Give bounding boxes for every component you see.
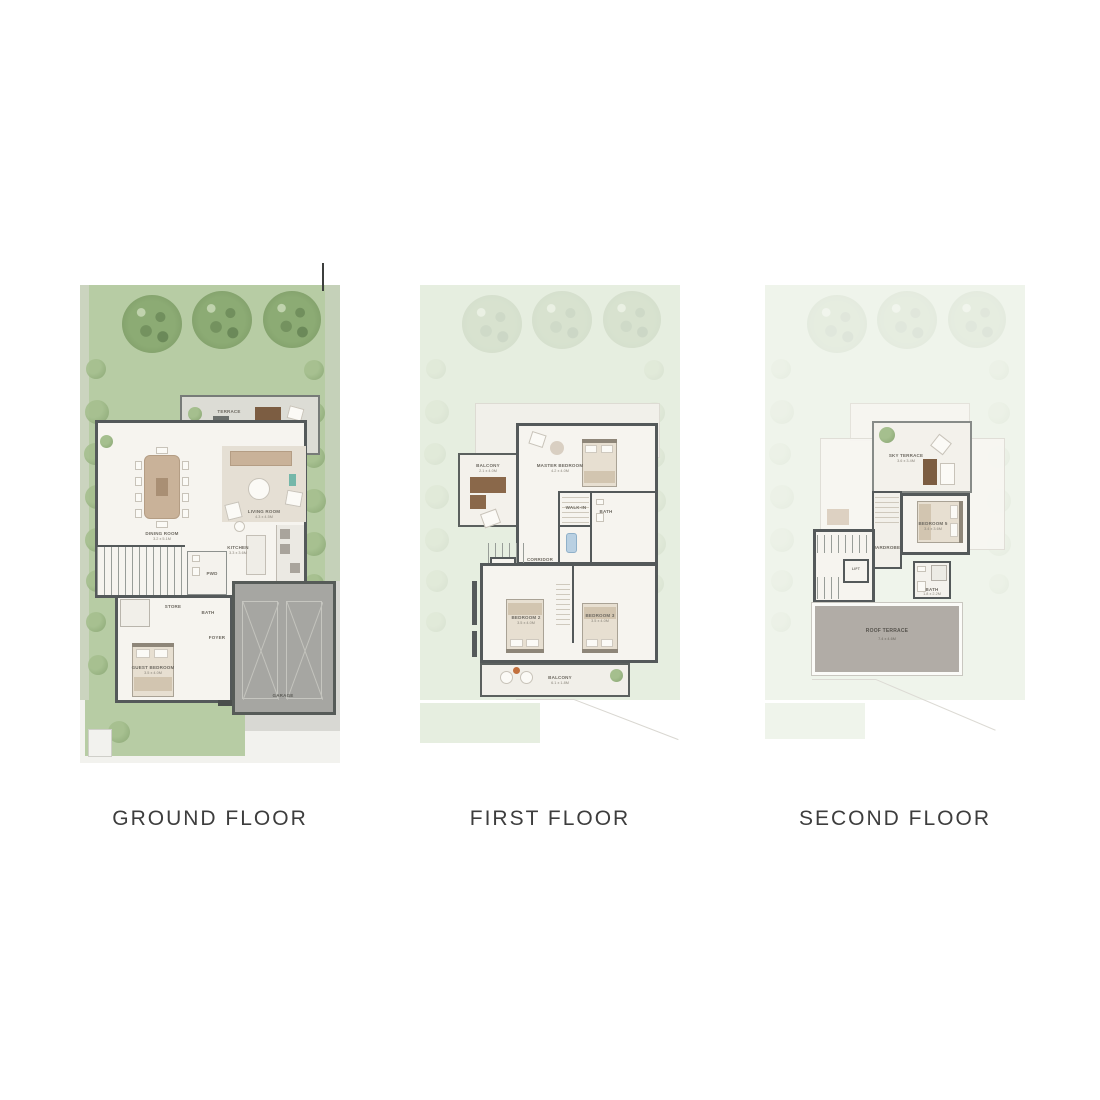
wall-stub [472,581,477,625]
armchair [285,490,303,508]
room-label: SKY TERRACE [889,453,923,458]
appliance [290,563,300,573]
pillow [136,649,150,658]
chair [182,493,189,502]
plant-icon [879,427,895,443]
desk-chair [940,463,955,485]
room-label: PWD [206,571,217,576]
first-floor-plan: BALCONY 2.1 x 4.0M MASTER BEDROOM 4.2 x … [420,263,680,763]
room-label: WARDROBE [872,545,900,550]
table-runner [156,478,168,496]
room-dims: 2.1 x 4.0M [479,469,497,473]
room-label: TERRACE [217,409,240,414]
faint-sofa [827,509,849,525]
room-dims: 3.5 x 4.0M [591,619,609,623]
pillow [601,445,613,453]
room-dims: 7.4 x 4.6M [878,637,896,641]
chair [156,521,168,528]
pillow [526,639,539,647]
pillow [950,505,958,519]
garage-door [286,601,322,699]
boundary-tick [322,263,324,291]
room-dims: 3.5 x 4.0M [517,621,535,625]
headboard [506,649,544,653]
pillow [154,649,168,658]
stairs [817,577,841,599]
appliance [280,529,290,539]
chair [182,461,189,470]
wall [558,491,560,563]
plant-icon [100,435,113,448]
tree-icon [192,291,252,349]
room-label: MASTER BEDROOM [537,463,584,468]
caption-ground-floor: GROUND FLOOR [80,807,340,831]
pillow [601,639,613,647]
bush-icon [86,359,106,379]
tree-icon [122,295,182,353]
room-label: DINING ROOM [145,531,178,536]
room-label: BALCONY [548,675,572,680]
wall [560,525,592,527]
room-label: GARAGE [273,693,294,698]
room-dims: 6.1 x 1.8M [551,681,569,685]
chair [182,509,189,518]
outdoor-sofa [470,477,506,493]
outdoor-chair [500,671,513,684]
room-label: BEDROOM 5 [918,521,947,526]
chair [182,477,189,486]
pillow [950,523,958,537]
room-label: BATH [202,610,215,615]
utility-structure [88,729,112,757]
room-dims: 4.2 x 4.0M [551,469,569,473]
bush-icon [304,360,324,380]
sofa [230,451,292,466]
wall [560,491,658,493]
room-dims: 3.3 x 3.6M [229,551,247,555]
desk [923,459,937,485]
caption-first-floor: FIRST FLOOR [420,807,680,831]
roof-line [516,699,574,700]
room-label: BATH [600,509,613,514]
pouf [550,441,564,455]
bed-throw [508,603,542,615]
headboard [132,643,174,647]
second-floor-plan: SKY TERRACE 3.6 x 3.4M BEDROOM 5 3.4 x 3… [765,263,1025,763]
laundry-room [120,599,150,627]
stairs [817,535,871,553]
room-label: BALCONY [476,463,500,468]
chair [156,447,168,454]
room-dims: 1.8 x 2.2M [923,592,941,596]
plant-icon [513,667,520,674]
chair [135,477,142,486]
garage-door [242,601,278,699]
room-label: CORRIDOR [527,557,553,562]
room-label: FOYER [209,635,226,640]
kitchen-island [246,535,266,575]
coffee-table [248,478,270,500]
room-label: STORE [165,604,181,609]
bed-throw [134,677,172,691]
pillow [510,639,523,647]
tree-icon [263,291,321,348]
sink [917,566,926,572]
caption-second-floor: SECOND FLOOR [765,807,1025,831]
toilet [192,567,200,576]
headboard [582,439,617,443]
plant-icon [289,474,296,486]
room-dims: 4.3 x 4.5M [255,515,273,519]
appliance [280,544,290,554]
chair [135,509,142,518]
ground-floor-plan: TERRACE DINING ROOM 3.2 x 5.1M LIVING RO… [80,263,340,763]
garage-door-x [287,602,323,700]
pillow [585,445,597,453]
room-label: WALK-IN [566,505,587,510]
bathtub [566,533,577,553]
outdoor-chair [520,671,533,684]
floorplan-sheet: { "captions": { "ground": "GROUND FLOOR"… [0,0,1100,1100]
pouf [234,521,245,532]
room-label: LIVING ROOM [248,509,280,514]
room-dims: 3.2 x 5.1M [153,537,171,541]
roof-line [812,679,876,680]
garage-door-x [243,602,279,700]
room-dims: 3.4 x 3.6M [924,527,942,531]
sink [192,555,200,562]
bush-icon [86,612,106,632]
headboard [582,649,618,653]
room-label: BEDROOM 2 [511,615,540,620]
plant-icon [610,669,623,682]
room-label: GUEST BEDROOM [132,665,175,670]
room-dims: 3.5 x 4.0M [144,671,162,675]
headboard [959,501,963,543]
outdoor-seat [470,495,486,509]
wall [572,565,574,643]
room-label: KITCHEN [227,545,248,550]
toilet [596,513,604,522]
wall [590,493,592,563]
room-label: LIFT [852,567,860,572]
bed-throw [584,471,615,483]
chair [135,461,142,470]
chair [135,493,142,502]
sink [596,499,604,505]
room-dims: 3.6 x 3.4M [897,459,915,463]
bush-icon [88,655,108,675]
wardrobe [875,495,899,523]
wardrobe [556,581,570,625]
pillow [586,639,598,647]
room-label: BEDROOM 3 [585,613,614,618]
shower [931,565,947,581]
wall-stub [472,631,477,657]
stairs [97,545,185,595]
plant-icon [188,407,202,421]
room-label: ROOF TERRACE [866,629,908,634]
